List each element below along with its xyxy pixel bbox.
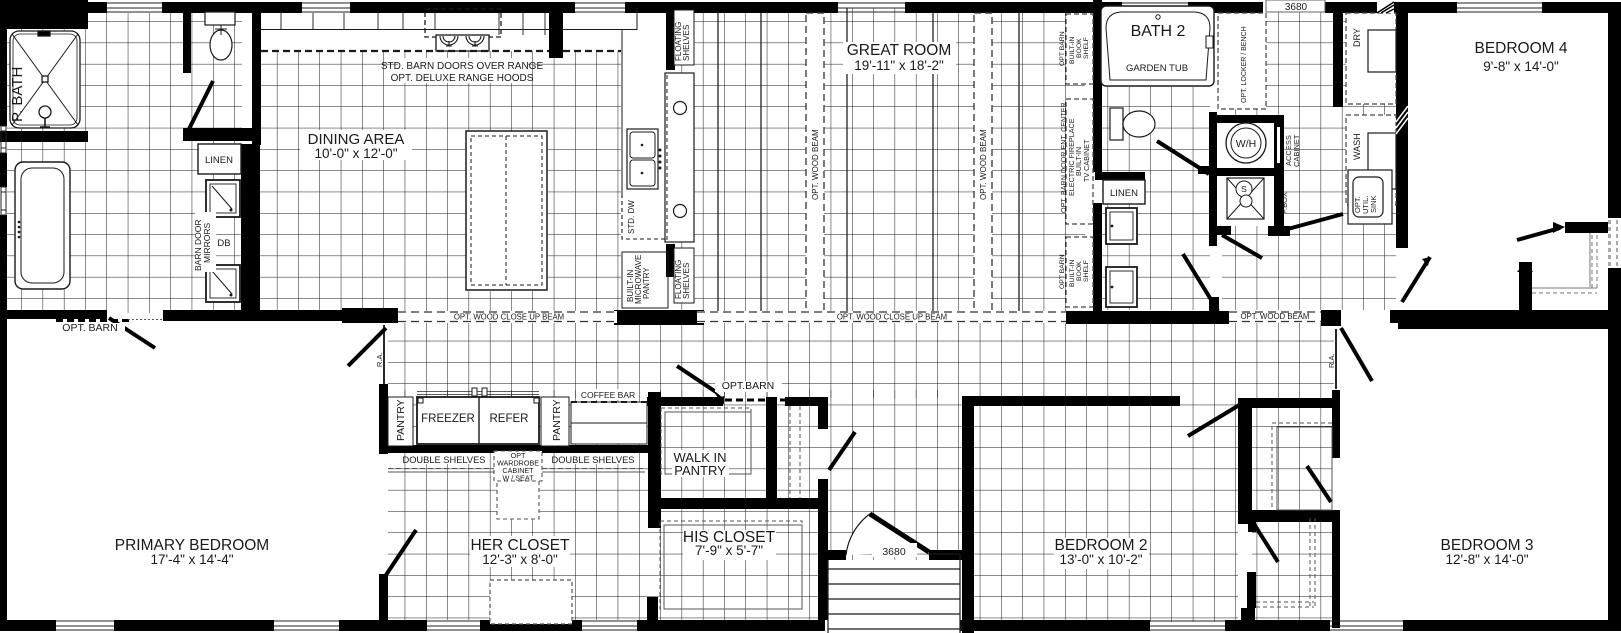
svg-text:R.A.: R.A.	[375, 352, 384, 367]
svg-text:9'-8" x 14'-0": 9'-8" x 14'-0"	[1483, 59, 1559, 74]
svg-text:DB: DB	[217, 238, 230, 249]
svg-text:OPT. WOOD CLOSE UP BEAM: OPT. WOOD CLOSE UP BEAM	[837, 313, 947, 322]
svg-text:3680: 3680	[882, 546, 906, 558]
svg-text:BUILT-IN: BUILT-IN	[1069, 36, 1076, 64]
svg-text:SHELF: SHELF	[1083, 260, 1090, 282]
svg-text:12'-3" x 8'-0": 12'-3" x 8'-0"	[482, 552, 558, 567]
svg-text:13'-0" x 10'-2": 13'-0" x 10'-2"	[1059, 552, 1142, 567]
svg-text:19'-11" x 18'-2": 19'-11" x 18'-2"	[854, 58, 944, 73]
svg-text:DRY: DRY	[1352, 28, 1362, 47]
svg-text:P. BATH: P. BATH	[9, 67, 26, 122]
svg-text:OPT. WOOD BEAM: OPT. WOOD BEAM	[979, 129, 988, 200]
svg-text:LINEN: LINEN	[1110, 188, 1138, 199]
svg-text:DOUBLE SHELVES: DOUBLE SHELVES	[551, 455, 634, 465]
svg-text:10'-0" x 12'-0": 10'-0" x 12'-0"	[314, 146, 397, 161]
svg-text:PANTRY: PANTRY	[642, 267, 651, 299]
svg-text:MIRRORS: MIRRORS	[202, 223, 212, 263]
svg-text:STD. DW: STD. DW	[627, 200, 636, 234]
svg-text:OPT. WOOD BEAM: OPT. WOOD BEAM	[811, 129, 820, 200]
svg-text:PANTRY: PANTRY	[395, 399, 407, 441]
svg-text:S: S	[1241, 184, 1247, 194]
svg-text:OPT BARN: OPT BARN	[1059, 31, 1066, 66]
svg-text:PANTRY: PANTRY	[551, 399, 563, 441]
svg-text:W / SEAT: W / SEAT	[502, 474, 534, 483]
svg-text:OPT. LOCKER / BENCH: OPT. LOCKER / BENCH	[1241, 26, 1248, 103]
svg-text:TV CABINET: TV CABINET	[1082, 139, 1091, 182]
svg-text:OPT. WOOD BEAM: OPT. WOOD BEAM	[1241, 312, 1310, 321]
svg-text:BOOK: BOOK	[1076, 261, 1083, 281]
svg-text:COFFEE BAR: COFFEE BAR	[581, 390, 635, 400]
svg-text:12'-8" x 14'-0": 12'-8" x 14'-0"	[1445, 552, 1528, 567]
svg-text:DOUBLE SHELVES: DOUBLE SHELVES	[402, 455, 485, 465]
svg-text:SHELF: SHELF	[1083, 37, 1090, 59]
svg-text:REFER: REFER	[490, 413, 529, 425]
svg-text:OPT. DELUXE RANGE HOODS: OPT. DELUXE RANGE HOODS	[391, 73, 534, 84]
svg-text:SHELVES: SHELVES	[682, 263, 691, 299]
svg-text:OPT.BARN: OPT.BARN	[722, 380, 775, 392]
svg-text:GARDEN TUB: GARDEN TUB	[1126, 63, 1188, 74]
svg-text:PANTRY: PANTRY	[674, 463, 726, 478]
svg-text:R.A.: R.A.	[1327, 353, 1336, 368]
svg-text:SHELVES: SHELVES	[682, 25, 691, 61]
svg-text:BEDROOM 4: BEDROOM 4	[1474, 40, 1567, 57]
svg-text:SINK: SINK	[1369, 195, 1378, 213]
svg-text:OPT BARN: OPT BARN	[1059, 254, 1066, 289]
svg-text:W/H: W/H	[1236, 138, 1256, 150]
svg-text:3680: 3680	[1285, 2, 1308, 13]
svg-text:BUILT-IN: BUILT-IN	[1069, 259, 1076, 287]
svg-text:BATH 2: BATH 2	[1131, 23, 1186, 40]
svg-text:OPT. WOOD CLOSE UP BEAM: OPT. WOOD CLOSE UP BEAM	[454, 313, 564, 322]
svg-text:OPT. BARN: OPT. BARN	[62, 322, 117, 334]
svg-text:BOOK: BOOK	[1076, 38, 1083, 58]
svg-text:FREEZER: FREEZER	[421, 413, 475, 425]
svg-text:P.BOX: P.BOX	[1280, 192, 1289, 214]
svg-text:WASH: WASH	[1352, 133, 1362, 160]
svg-text:STD. BARN DOORS OVER RANGE: STD. BARN DOORS OVER RANGE	[381, 61, 544, 72]
svg-text:CABINET: CABINET	[1292, 134, 1301, 167]
svg-text:17'-4" x 14'-4": 17'-4" x 14'-4"	[150, 552, 233, 567]
svg-text:LINEN: LINEN	[205, 155, 233, 166]
svg-text:7'-9" x 5'-7": 7'-9" x 5'-7"	[695, 543, 763, 558]
svg-text:GREAT ROOM: GREAT ROOM	[847, 42, 952, 59]
